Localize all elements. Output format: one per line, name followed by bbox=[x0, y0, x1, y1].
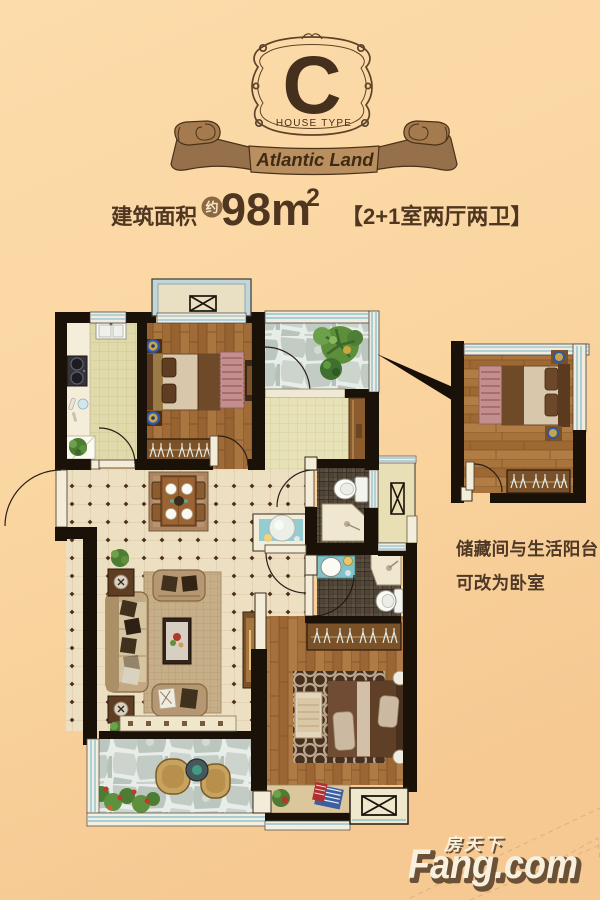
svg-text:2: 2 bbox=[306, 184, 320, 212]
svg-text:储藏间与生活阳台: 储藏间与生活阳台 bbox=[456, 539, 598, 559]
svg-text:约: 约 bbox=[205, 200, 218, 215]
svg-text:【2+1室两厅两卫】: 【2+1室两厅两卫】 bbox=[341, 204, 532, 229]
svg-text:可改为卧室: 可改为卧室 bbox=[456, 573, 545, 593]
svg-text:HOUSE TYPE: HOUSE TYPE bbox=[276, 118, 352, 129]
svg-text:Atlantic Land: Atlantic Land bbox=[255, 149, 374, 170]
svg-text:Fang.com: Fang.com bbox=[408, 841, 578, 887]
svg-text:98m: 98m bbox=[221, 184, 311, 235]
svg-text:建筑面积: 建筑面积 bbox=[111, 204, 198, 229]
